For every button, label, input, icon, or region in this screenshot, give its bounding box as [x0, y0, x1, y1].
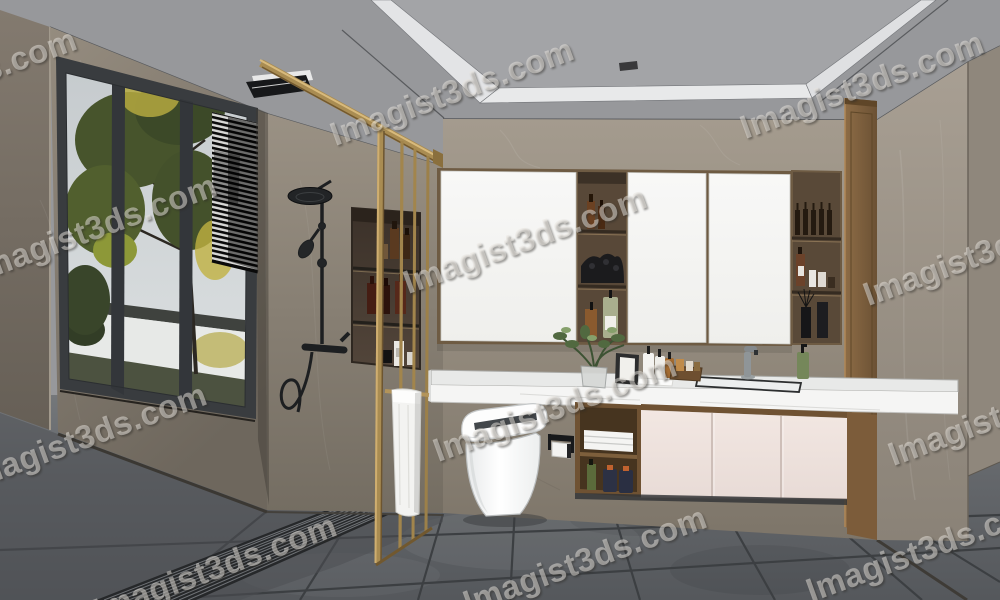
bathroom-render-canvas — [0, 0, 1000, 600]
hand-shower-holder — [319, 223, 326, 230]
folded-towels — [584, 430, 633, 452]
mirror-panel-right-2 — [709, 174, 790, 345]
open-shelf-unit — [575, 402, 641, 497]
shower-mixer — [305, 347, 344, 350]
mirror-panel-right-1 — [628, 173, 706, 343]
right-wall-far-strip — [968, 46, 1000, 476]
left-wall-return — [0, 10, 50, 430]
wall-shelf-unit — [792, 171, 841, 344]
window — [56, 56, 258, 421]
mirror-cabinet — [437, 168, 792, 353]
shower-niche — [352, 208, 420, 369]
counter-towel — [638, 378, 673, 386]
wood-side-panel — [847, 412, 877, 540]
bathroom-render: Imagist3ds.comImagist3ds.comImagist3ds.c… — [0, 0, 1000, 600]
partition-bar — [426, 156, 428, 531]
venetian-blind — [212, 112, 258, 273]
pink-cabinets — [641, 404, 847, 499]
photo-frame — [615, 353, 639, 385]
toilet-paper-holder — [548, 434, 574, 458]
mirror-panel-left — [441, 171, 576, 342]
right-wall — [877, 46, 1000, 541]
mirror-cabinet-niche — [578, 172, 626, 343]
diverter-knob — [318, 259, 327, 268]
vase — [581, 366, 607, 388]
